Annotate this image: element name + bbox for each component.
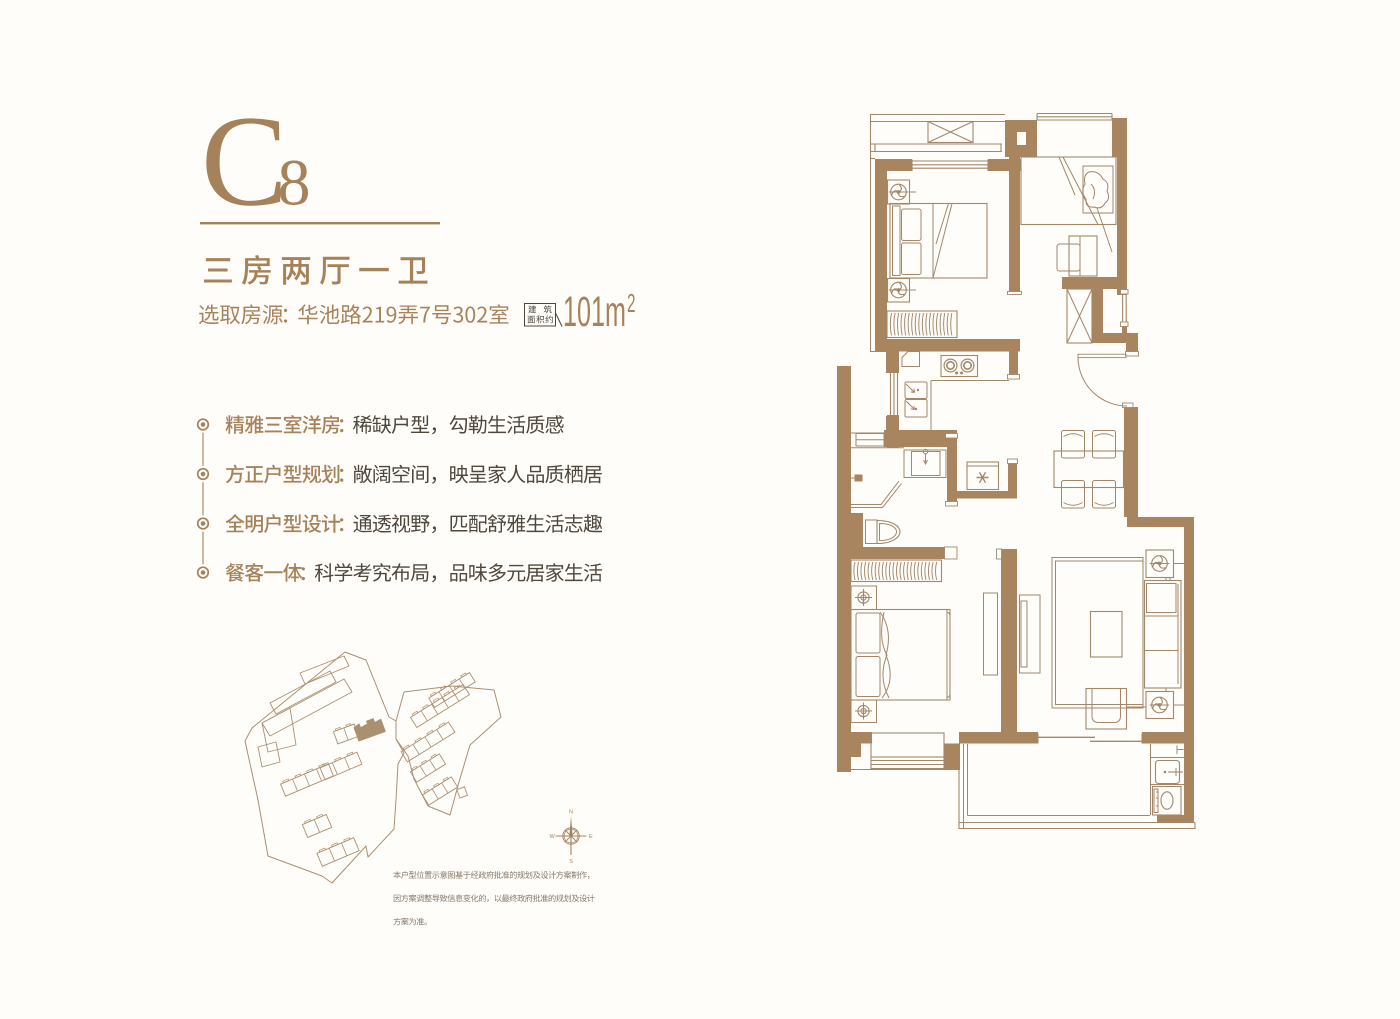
svg-text:W: W	[550, 834, 556, 840]
svg-text:8: 8	[278, 147, 311, 220]
svg-text:101m: 101m	[563, 288, 626, 336]
svg-text:2: 2	[627, 289, 635, 318]
svg-text:E: E	[589, 834, 593, 840]
svg-text:S: S	[569, 859, 573, 865]
svg-text:C: C	[201, 90, 288, 234]
svg-text:N: N	[569, 810, 573, 816]
